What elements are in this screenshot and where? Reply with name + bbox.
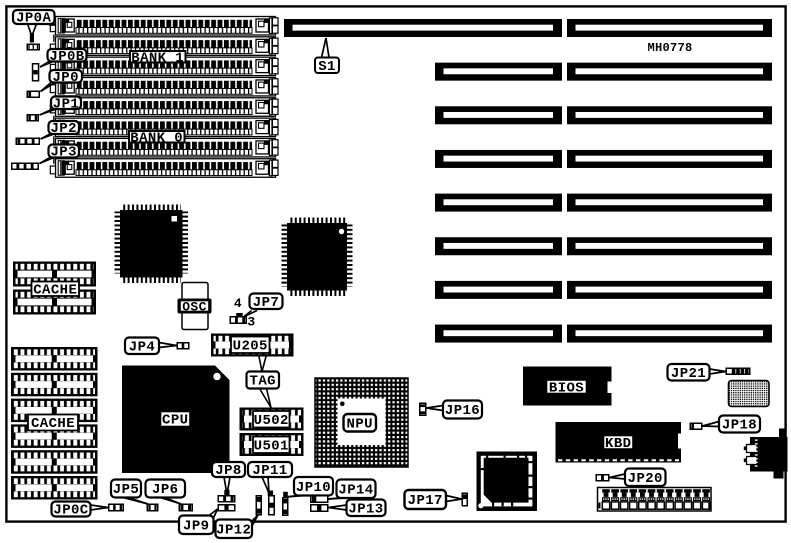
svg-text:JP2: JP2 [50, 121, 76, 137]
svg-text:MH0778: MH0778 [647, 41, 692, 55]
svg-text:JP6: JP6 [152, 482, 178, 498]
svg-text:JP18: JP18 [722, 418, 757, 434]
svg-text:4: 4 [234, 296, 242, 311]
svg-text:JP14: JP14 [338, 482, 373, 498]
svg-text:U502: U502 [254, 413, 289, 429]
svg-text:JP3: JP3 [50, 145, 76, 161]
svg-text:NPU: NPU [347, 416, 373, 432]
svg-text:JP12: JP12 [216, 522, 251, 538]
svg-text:JP4: JP4 [129, 339, 155, 355]
svg-text:JP9: JP9 [183, 518, 209, 534]
svg-text:JP0C: JP0C [53, 503, 88, 519]
svg-text:JP0A: JP0A [16, 11, 51, 27]
svg-text:BIOS: BIOS [549, 380, 584, 396]
svg-text:OSC: OSC [182, 300, 207, 315]
svg-text:JP11: JP11 [252, 463, 287, 479]
svg-text:JP8: JP8 [215, 463, 241, 479]
svg-text:JP13: JP13 [348, 501, 383, 517]
svg-text:BANK 1: BANK 1 [131, 50, 184, 66]
svg-text:TAG: TAG [250, 374, 276, 390]
svg-text:JP1: JP1 [53, 96, 79, 112]
svg-text:CACHE: CACHE [33, 282, 77, 298]
svg-text:U501: U501 [254, 438, 289, 454]
svg-text:JP17: JP17 [408, 493, 443, 509]
svg-text:U205: U205 [233, 338, 268, 354]
svg-text:BANK 0: BANK 0 [130, 130, 183, 146]
svg-text:CPU: CPU [162, 413, 188, 429]
svg-text:JP16: JP16 [445, 403, 480, 419]
svg-text:JP7: JP7 [253, 295, 279, 311]
svg-text:CACHE: CACHE [31, 416, 75, 432]
svg-text:3: 3 [247, 315, 255, 330]
svg-text:KBD: KBD [605, 436, 631, 452]
svg-text:JP0: JP0 [52, 70, 78, 86]
svg-text:JP20: JP20 [628, 471, 663, 487]
svg-text:JP21: JP21 [671, 366, 706, 382]
svg-text:JP0B: JP0B [49, 49, 84, 65]
svg-text:JP10: JP10 [296, 480, 331, 496]
svg-text:S1: S1 [318, 59, 336, 75]
svg-text:JP5: JP5 [113, 482, 139, 498]
